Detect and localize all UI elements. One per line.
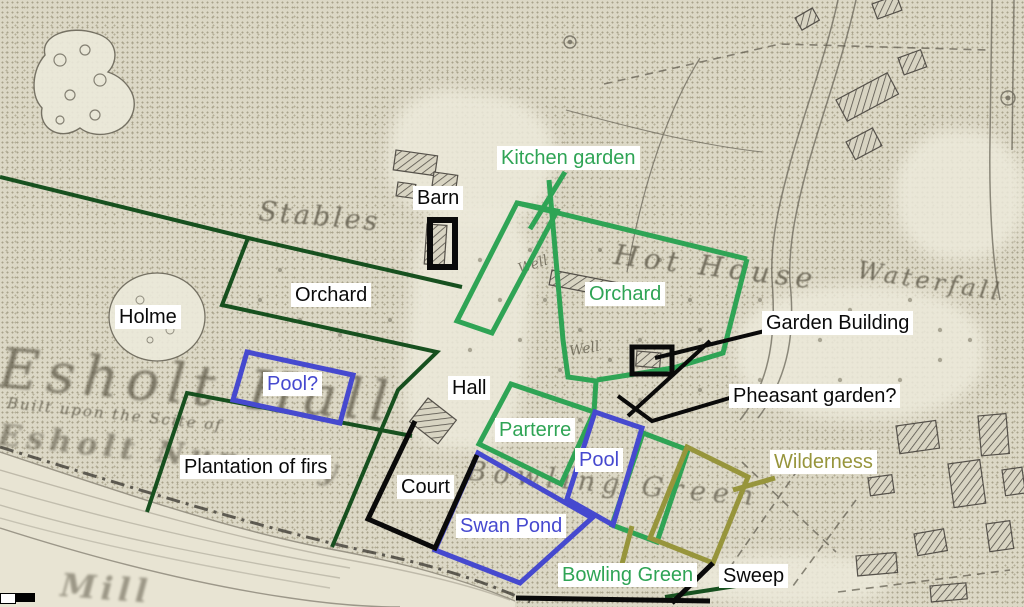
barn-outline — [430, 220, 455, 267]
wilderness-outline — [650, 447, 748, 563]
label-plantation: Plantation of firs — [180, 455, 331, 479]
label-pool-question: Pool? — [263, 372, 322, 396]
label-pheasant-garden: Pheasant garden? — [729, 384, 900, 408]
sweep-line-long — [516, 598, 710, 601]
label-parterre: Parterre — [495, 418, 575, 442]
label-garden-building: Garden Building — [762, 311, 913, 335]
label-pool: Pool — [575, 448, 623, 472]
label-hall: Hall — [448, 376, 490, 400]
label-swan-pond: Swan Pond — [456, 514, 566, 538]
label-court: Court — [397, 475, 454, 499]
kitchen-garden-west-strip — [457, 203, 557, 333]
annotated-historic-map: Stables Esholt Hall Built upon the Scite… — [0, 0, 1024, 607]
label-kitchen-garden: Kitchen garden — [497, 146, 640, 170]
label-sweep: Sweep — [719, 564, 788, 588]
park-boundary-north — [0, 177, 462, 287]
garden-cross-line — [628, 341, 710, 416]
label-orchard-west: Orchard — [291, 283, 371, 307]
label-wilderness: Wilderness — [770, 450, 877, 474]
label-barn: Barn — [413, 186, 463, 210]
label-holme: Holme — [115, 305, 181, 329]
label-orchard-east: Orchard — [585, 282, 665, 306]
label-bowling-green: Bowling Green — [558, 563, 697, 587]
wilderness-leader — [733, 478, 775, 490]
